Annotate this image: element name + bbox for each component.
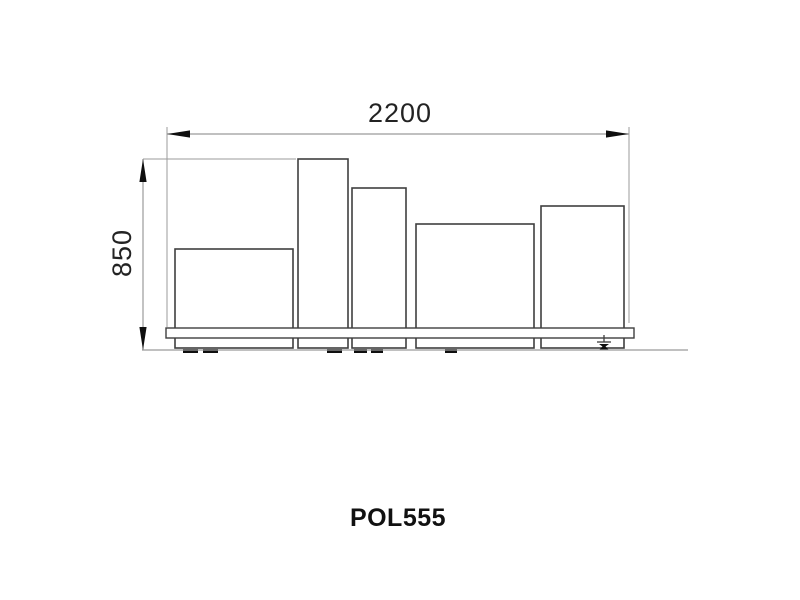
- module-rect: [352, 188, 406, 348]
- arrowhead-left-icon: [167, 130, 190, 137]
- arrowhead-down-icon: [139, 327, 146, 350]
- module-rect: [541, 206, 624, 348]
- cabinet-modules: [175, 159, 624, 348]
- product-code-label: POL555: [198, 504, 598, 533]
- height-dimension-label: 850: [107, 229, 137, 277]
- arrowhead-right-icon: [606, 130, 629, 137]
- width-dimension-label: 2200: [368, 98, 432, 128]
- technical-drawing-page: 2200 850 POL555: [0, 0, 800, 600]
- module-rect: [298, 159, 348, 348]
- arrowhead-up-icon: [139, 159, 146, 182]
- plinth-rail: [166, 328, 634, 338]
